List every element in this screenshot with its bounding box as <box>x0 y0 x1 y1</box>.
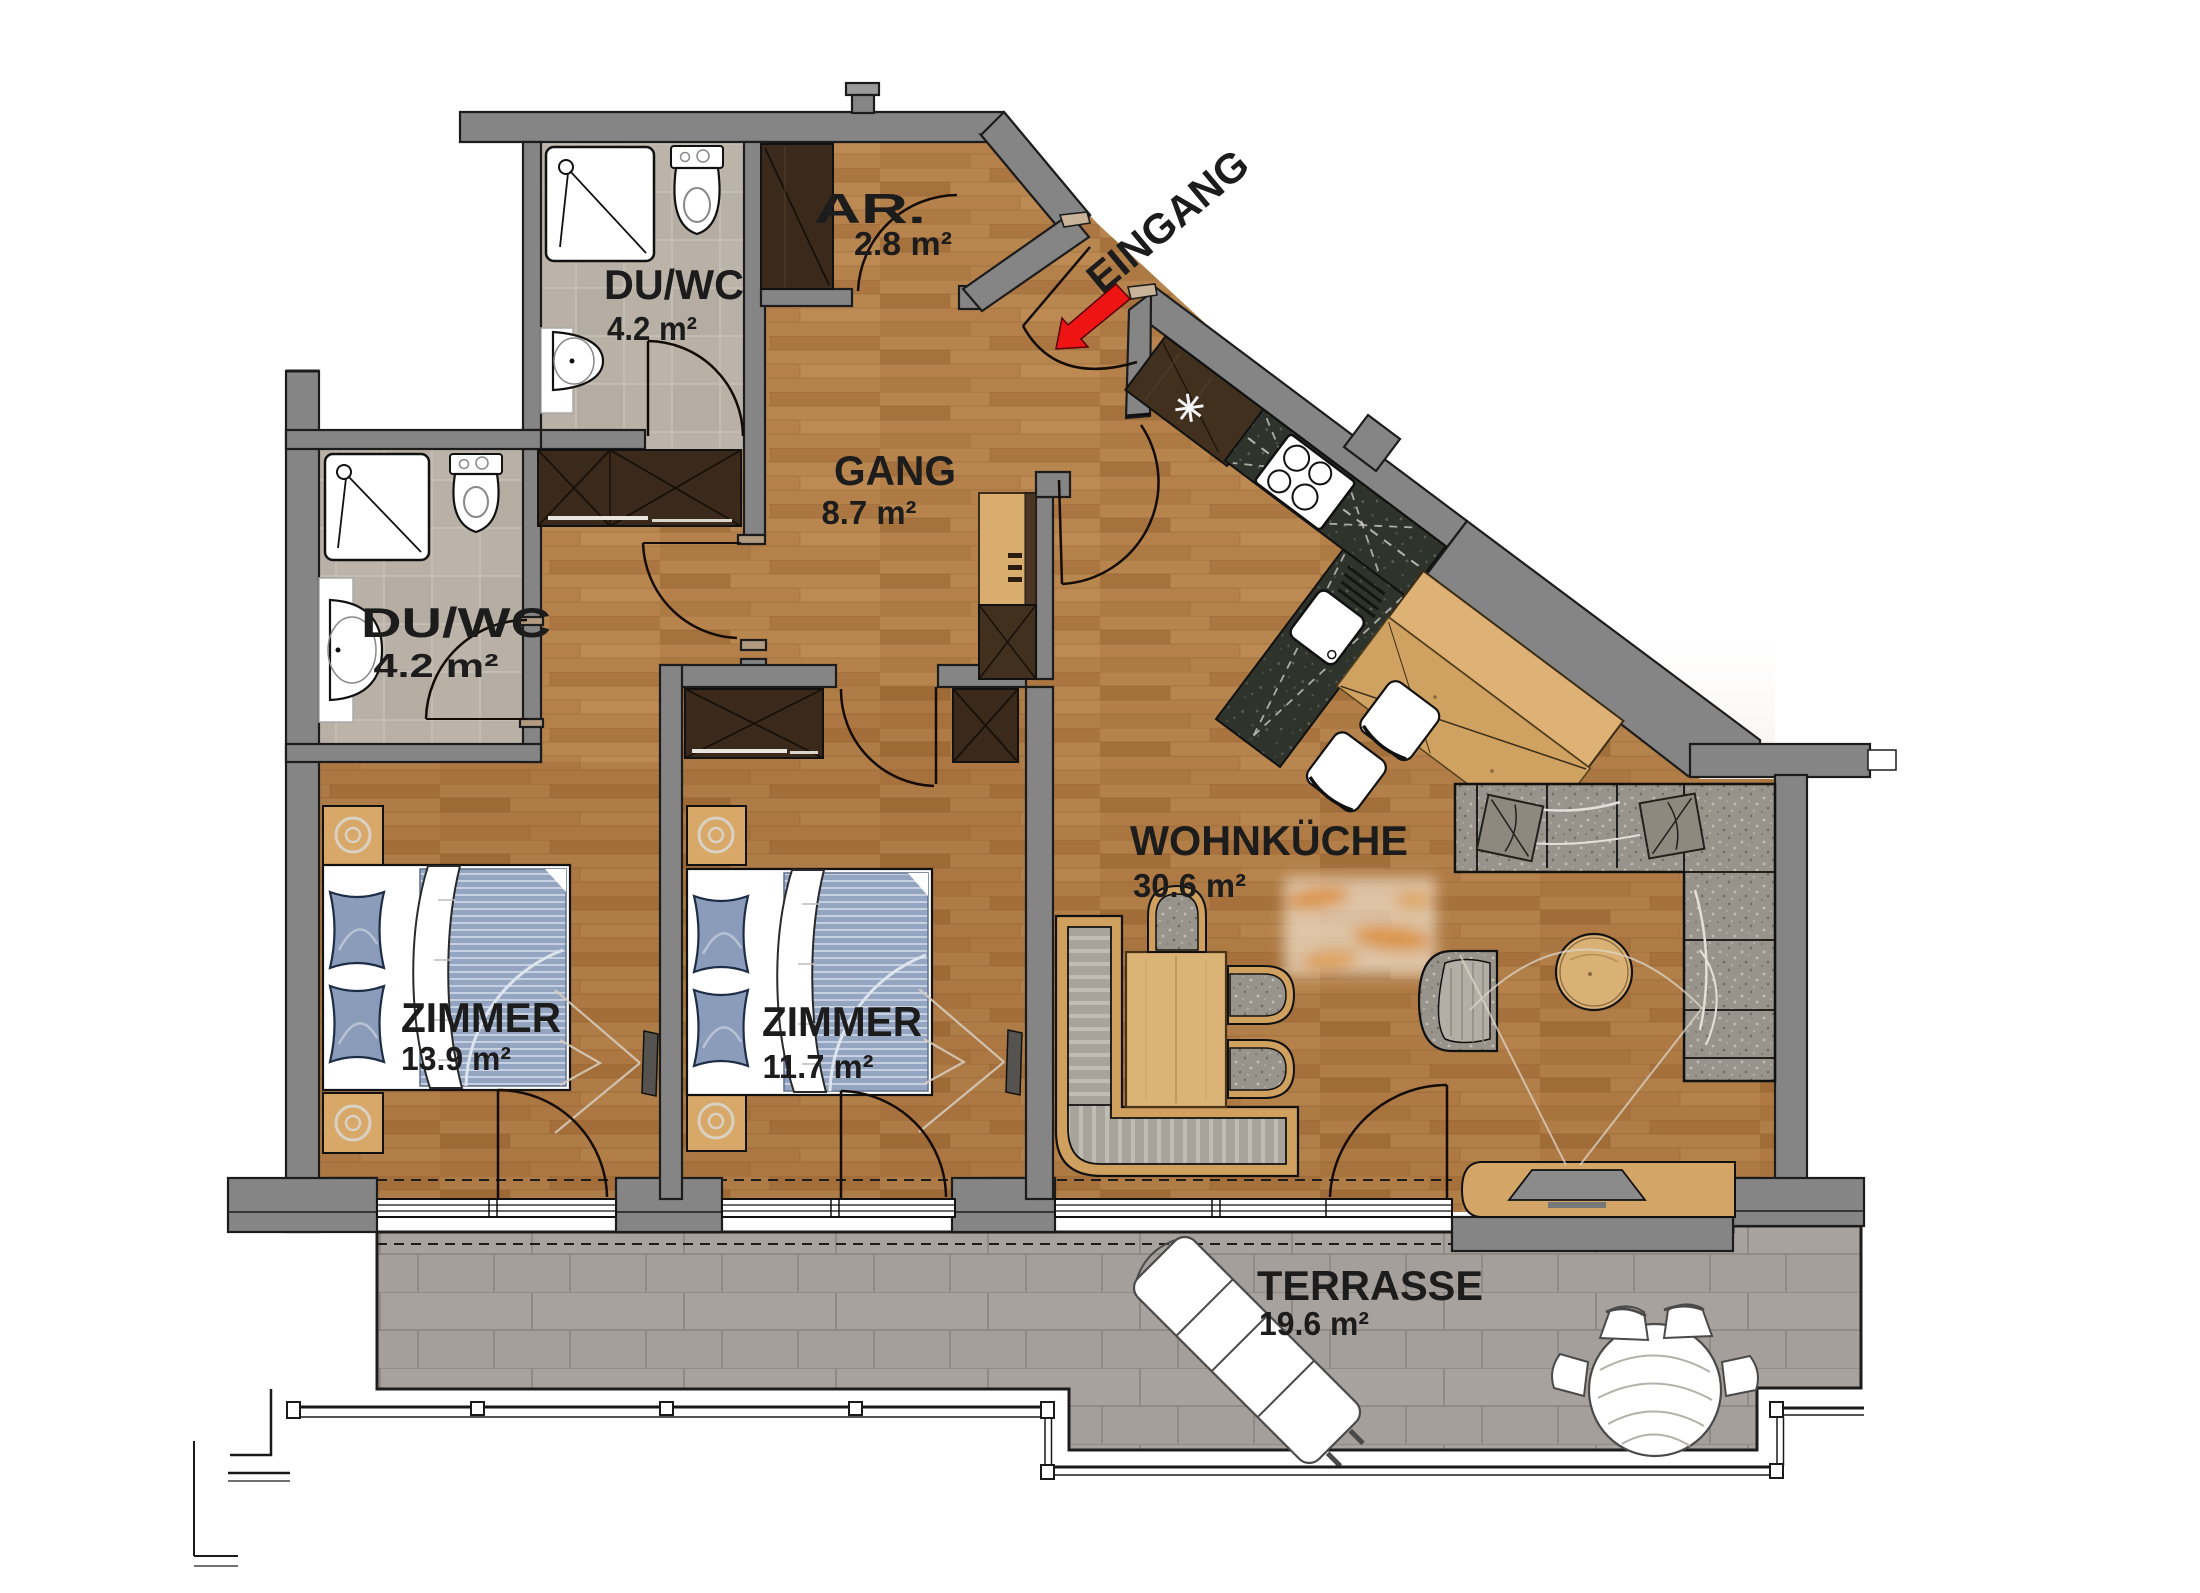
svg-text:8.7 m²: 8.7 m² <box>822 494 917 531</box>
svg-text:4.2 m²: 4.2 m² <box>607 310 697 347</box>
svg-text:2.8 m²: 2.8 m² <box>854 225 952 262</box>
svg-text:4.2 m²: 4.2 m² <box>374 647 499 684</box>
svg-text:ZIMMER: ZIMMER <box>762 998 922 1045</box>
svg-text:30.6 m²: 30.6 m² <box>1133 867 1246 904</box>
svg-text:11.7 m²: 11.7 m² <box>763 1048 874 1085</box>
svg-text:WOHNKÜCHE: WOHNKÜCHE <box>1130 817 1408 864</box>
svg-text:DU/WC: DU/WC <box>604 261 744 308</box>
svg-text:GANG: GANG <box>834 447 956 494</box>
svg-text:13.9 m²: 13.9 m² <box>401 1040 511 1077</box>
svg-text:DU/WC: DU/WC <box>361 599 551 646</box>
svg-text:19.6 m²: 19.6 m² <box>1259 1305 1369 1342</box>
svg-text:ZIMMER: ZIMMER <box>401 994 561 1041</box>
svg-text:TERRASSE: TERRASSE <box>1257 1262 1483 1309</box>
